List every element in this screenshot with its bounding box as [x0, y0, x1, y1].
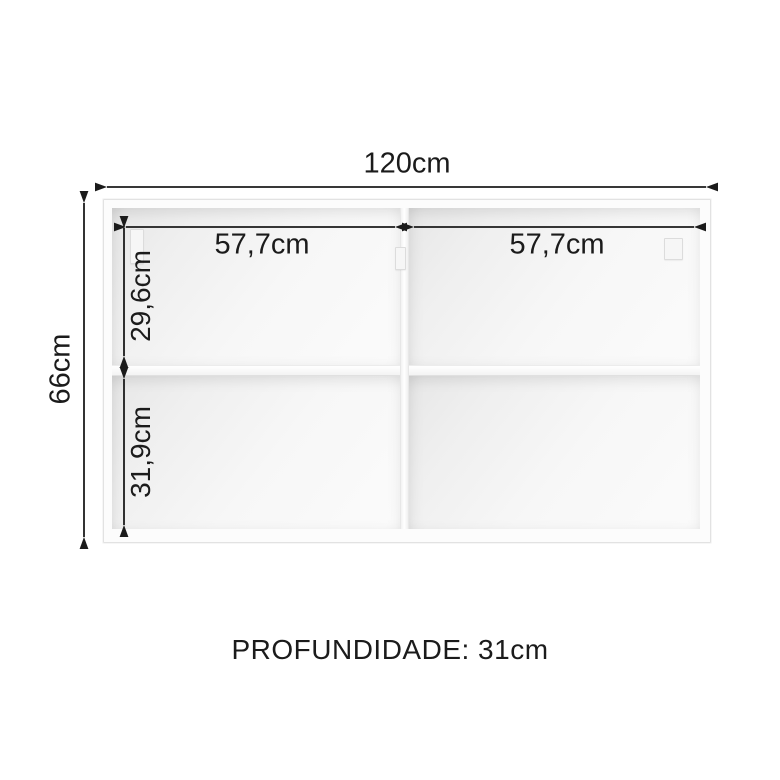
total-height-label: 66cm — [45, 334, 78, 405]
right-compartment-width-label: 57,7cm — [509, 229, 604, 262]
cabinet-outline — [103, 199, 711, 543]
top-section-height-label: 29,6cm — [125, 250, 157, 342]
product-dimension-diagram: 120cm 66cm 57,7cm 57,7cm 29,6cm 31,9cm P… — [0, 0, 780, 780]
cabinet-interior — [112, 208, 700, 529]
depth-label: PROFUNDIDADE: 31cm — [231, 634, 548, 666]
compartment-bottom-right — [409, 376, 700, 529]
hinge-plate-center — [395, 247, 406, 270]
bottom-section-height-label: 31,9cm — [125, 406, 157, 498]
total-width-label: 120cm — [363, 148, 450, 181]
left-compartment-width-label: 57,7cm — [214, 229, 309, 262]
hinge-plate-right — [664, 238, 683, 260]
